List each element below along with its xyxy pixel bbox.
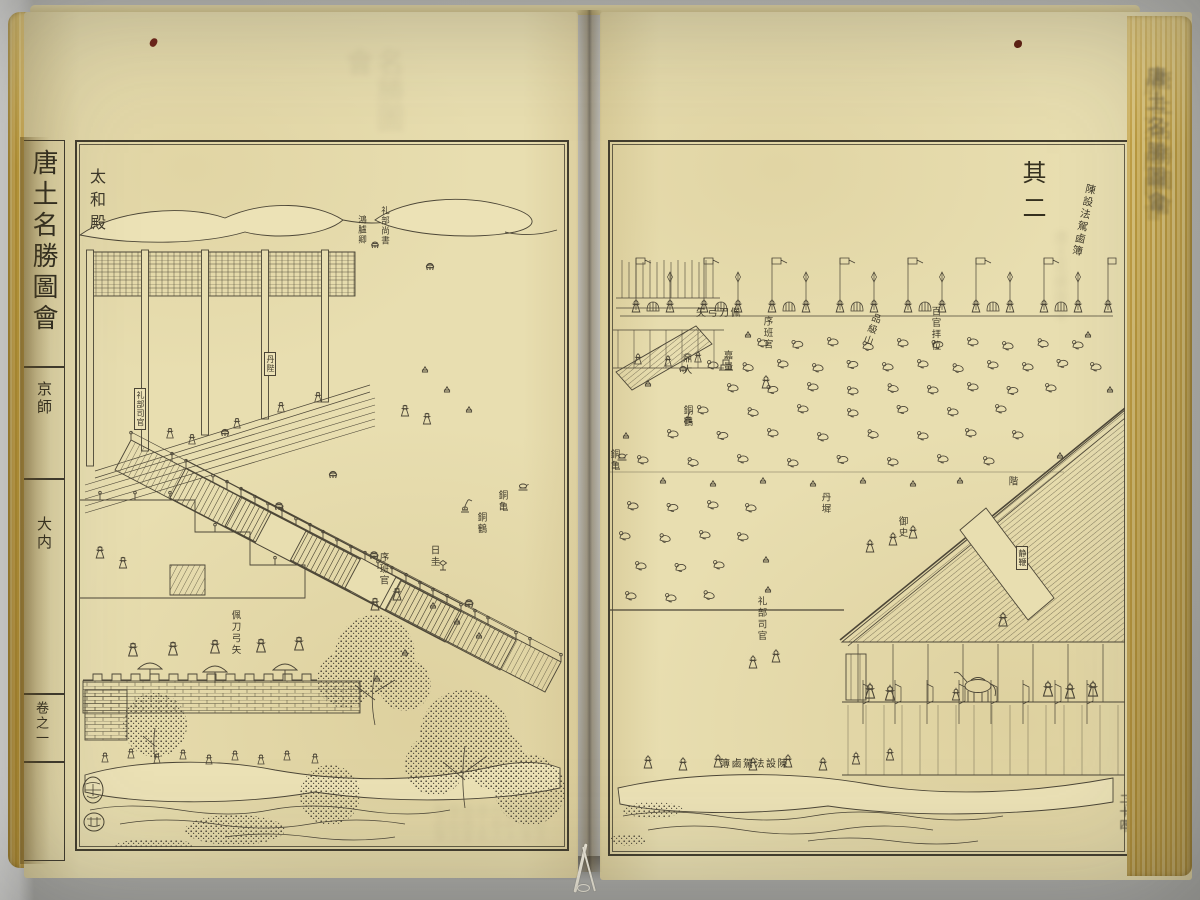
placard-jingbian: 静鞭 [1016, 546, 1028, 570]
strip-divider [24, 761, 64, 763]
label-armed-guards: 佩刀弓矢 [696, 304, 742, 319]
label-lubu-procession-bottom: 陳設法駕鹵簿 [720, 755, 789, 770]
subsection-label: 大内 [36, 516, 51, 552]
label-taihedian: 太和殿 [88, 168, 104, 237]
label-armed-guards: 佩刀弓矢 [230, 610, 240, 656]
placard-libu-siguan: 礼部司官 [134, 388, 146, 430]
label-ding: 鼎大 [681, 353, 691, 376]
label-bronze-crane: 銅鶴 [682, 405, 692, 428]
volume-label: 卷之一 [34, 701, 47, 746]
strip-divider [24, 478, 64, 480]
label-sundial: 日圭 [429, 545, 439, 568]
fold-ghost-title: 唐土名勝圖會 [1141, 66, 1170, 216]
book-gutter [576, 10, 602, 872]
label-libu-siguan: 礼部司官 [756, 596, 766, 642]
label-honglu-qing: 鴻臚卿 [357, 215, 366, 245]
left-page: 唐土名勝圖會 京師 大内 卷之一 [24, 12, 578, 878]
right-page: 唐土名勝圖會 其二 陳設法駕鹵簿 佩刀弓矢 序班官 品級山 百官拝位 嘉量 鼎大… [600, 12, 1192, 880]
series-title: 唐土名勝圖會 [30, 149, 56, 335]
placard-danbi: 丹陛 [264, 352, 276, 376]
binding-thread-loop [577, 884, 590, 892]
label-part-two: 其二 [1020, 160, 1044, 230]
label-bronze-turtle: 銅亀 [609, 449, 619, 472]
left-illustration-taihedian [75, 140, 565, 847]
label-bronze-crane: 銅鶴 [476, 512, 486, 535]
label-yushi: 御史 [897, 516, 907, 539]
label-libu-shangshu: 礼部尚書 [380, 206, 389, 246]
strip-divider [24, 366, 64, 368]
label-baiguan-baiwei: 百官拝位 [930, 306, 940, 352]
label-jialiang: 嘉量 [722, 350, 732, 373]
left-margin-strip: 唐土名勝圖會 京師 大内 卷之一 [24, 140, 65, 861]
right-illustration-courtyard [608, 140, 1125, 852]
section-label: 京師 [36, 381, 51, 417]
label-bronze-turtle: 銅亀 [497, 490, 507, 513]
label-danchi: 丹墀 [820, 492, 830, 515]
right-fold-edge: 唐土名勝圖會 [1127, 16, 1192, 876]
label-xuban-guan: 序班官 [762, 316, 772, 351]
photo-backdrop: 唐土名勝圖會 京師 大内 卷之一 [0, 0, 1200, 900]
strip-divider [24, 693, 64, 695]
label-xuban-guan: 序班官 [378, 552, 388, 587]
label-steps: 階 [1007, 476, 1017, 488]
